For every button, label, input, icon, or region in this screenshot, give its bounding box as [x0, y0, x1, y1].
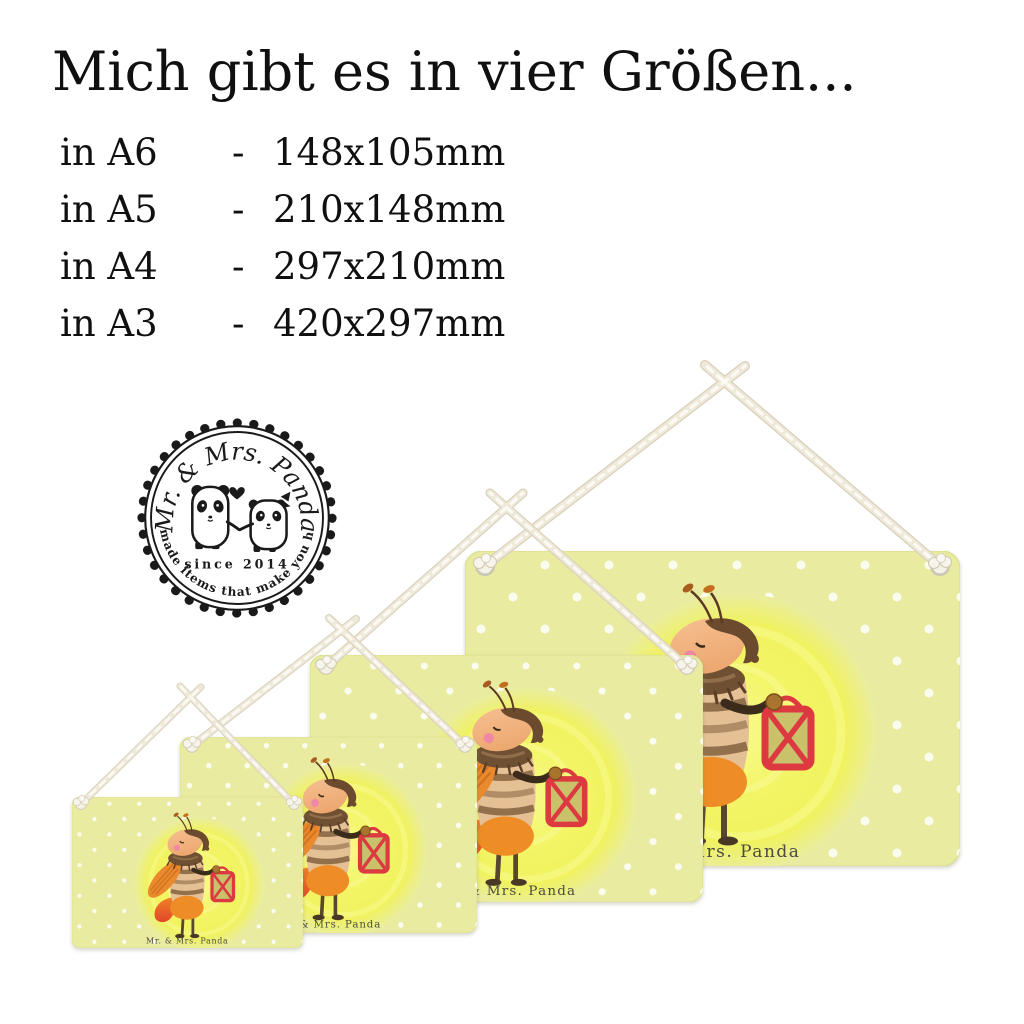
size-separator: -	[232, 238, 273, 295]
size-row-a6: in A6-148x105mm	[60, 124, 505, 181]
page-title: Mich gibt es in vier Größen...	[52, 40, 857, 103]
sign-a6	[72, 797, 303, 948]
size-dimensions: 420x297mm	[273, 295, 505, 352]
size-separator: -	[232, 181, 273, 238]
size-separator: -	[232, 295, 273, 352]
size-format: in A6	[60, 124, 232, 181]
size-format: in A5	[60, 181, 232, 238]
size-row-a4: in A4-297x210mm	[60, 238, 505, 295]
brand-badge: Mr. & Mrs. Panda since 2014	[135, 416, 339, 620]
size-dimensions: 297x210mm	[273, 238, 505, 295]
badge-since: since 2014	[184, 557, 289, 572]
size-format: in A4	[60, 238, 232, 295]
size-row-a3: in A3-420x297mm	[60, 295, 505, 352]
size-row-a5: in A5-210x148mm	[60, 181, 505, 238]
size-format: in A3	[60, 295, 232, 352]
size-separator: -	[232, 124, 273, 181]
size-list: in A6-148x105mm in A5-210x148mm in A4-29…	[60, 124, 505, 352]
size-dimensions: 148x105mm	[273, 124, 505, 181]
size-dimensions: 210x148mm	[273, 181, 505, 238]
